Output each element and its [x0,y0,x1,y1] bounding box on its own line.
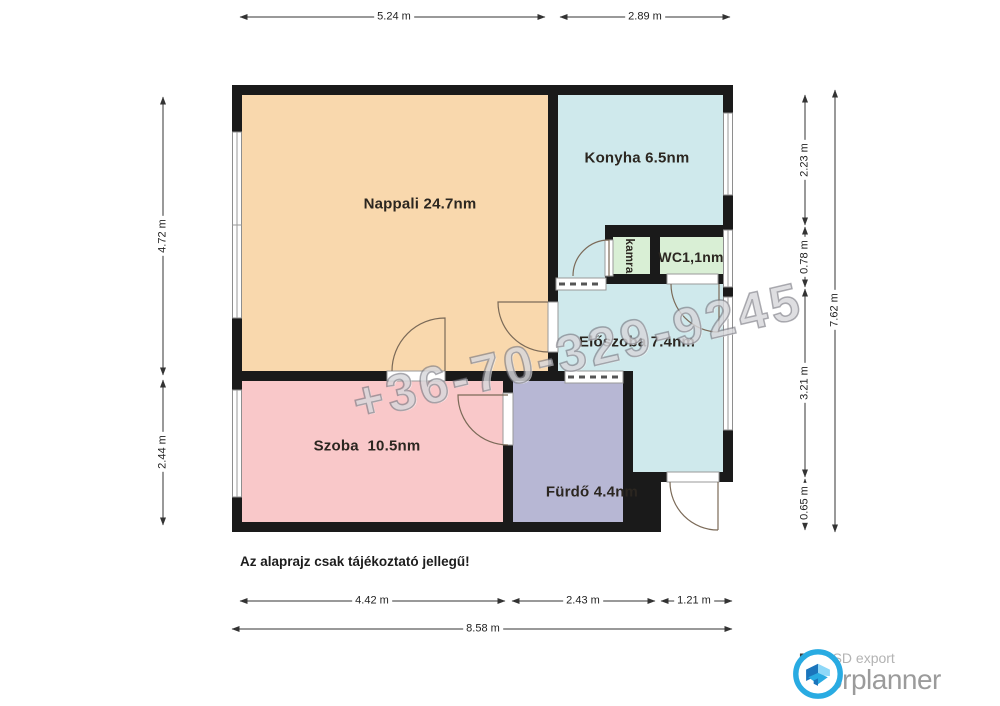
room-label-nappali: Nappali 24.7nm [364,196,477,213]
wall-corner-block [623,472,661,532]
door-frame-szoba-furdo [503,393,513,445]
wall-stub [548,352,558,371]
door-arc-entrance [670,482,718,530]
dim-label-top-2: 2.89 m [625,11,665,24]
dim-label-right-1: 2.23 m [799,140,812,180]
floorplanner-logo-icon [792,648,844,700]
door-frame-nappali-eloszoba [548,302,558,352]
room-label-furdo: Fürdő 4.4nm [546,484,638,501]
wall-furdo-right [623,371,633,472]
wall-kamra-wc-top [605,225,733,237]
dim-label-top-1: 5.24 m [374,11,414,24]
wall-bottom [232,522,661,532]
floorplanner-branding: FreeSD export floorplanner [792,648,941,694]
wall-stub [548,290,558,302]
dim-label-bottom-3: 1.21 m [674,595,714,608]
room-label-szoba: Szoba 10.5nm [314,438,421,455]
wall-nappali-konyha [548,85,558,290]
dim-label-right-2: 0.78 m [799,237,812,277]
room-label-konyha: Konyha 6.5nm [585,150,690,167]
dim-label-right-total: 7.62 m [829,290,842,330]
dim-label-left-2: 2.44 m [157,432,170,472]
room-nappali [242,95,548,371]
dim-label-right-3: 3.21 m [799,363,812,403]
dim-label-left-1: 4.72 m [157,216,170,256]
dim-label-bottom-1: 4.42 m [352,595,392,608]
dim-label-bottom-total: 8.58 m [463,623,503,636]
wall-top [232,85,733,95]
floorplan-page: Nappali 24.7nm Konyha 6.5nm kamra WC1,1n… [0,0,1000,706]
dim-label-bottom-2: 2.43 m [563,595,603,608]
room-furdo [513,381,623,523]
room-label-wc: WC1,1nm [658,249,723,265]
door-frame-entrance [667,472,719,482]
door-frame-wc [667,274,718,284]
disclaimer-text: Az alaprajz csak tájékoztató jellegű! [240,554,470,569]
dim-label-right-4: 0.65 m [799,483,812,523]
room-label-eloszoba: Előszoba 7.4nm [579,334,695,351]
floorplan-drawing [0,0,1000,706]
room-label-kamra: kamra [623,239,635,274]
door-frame-nappali-szoba [387,371,445,381]
